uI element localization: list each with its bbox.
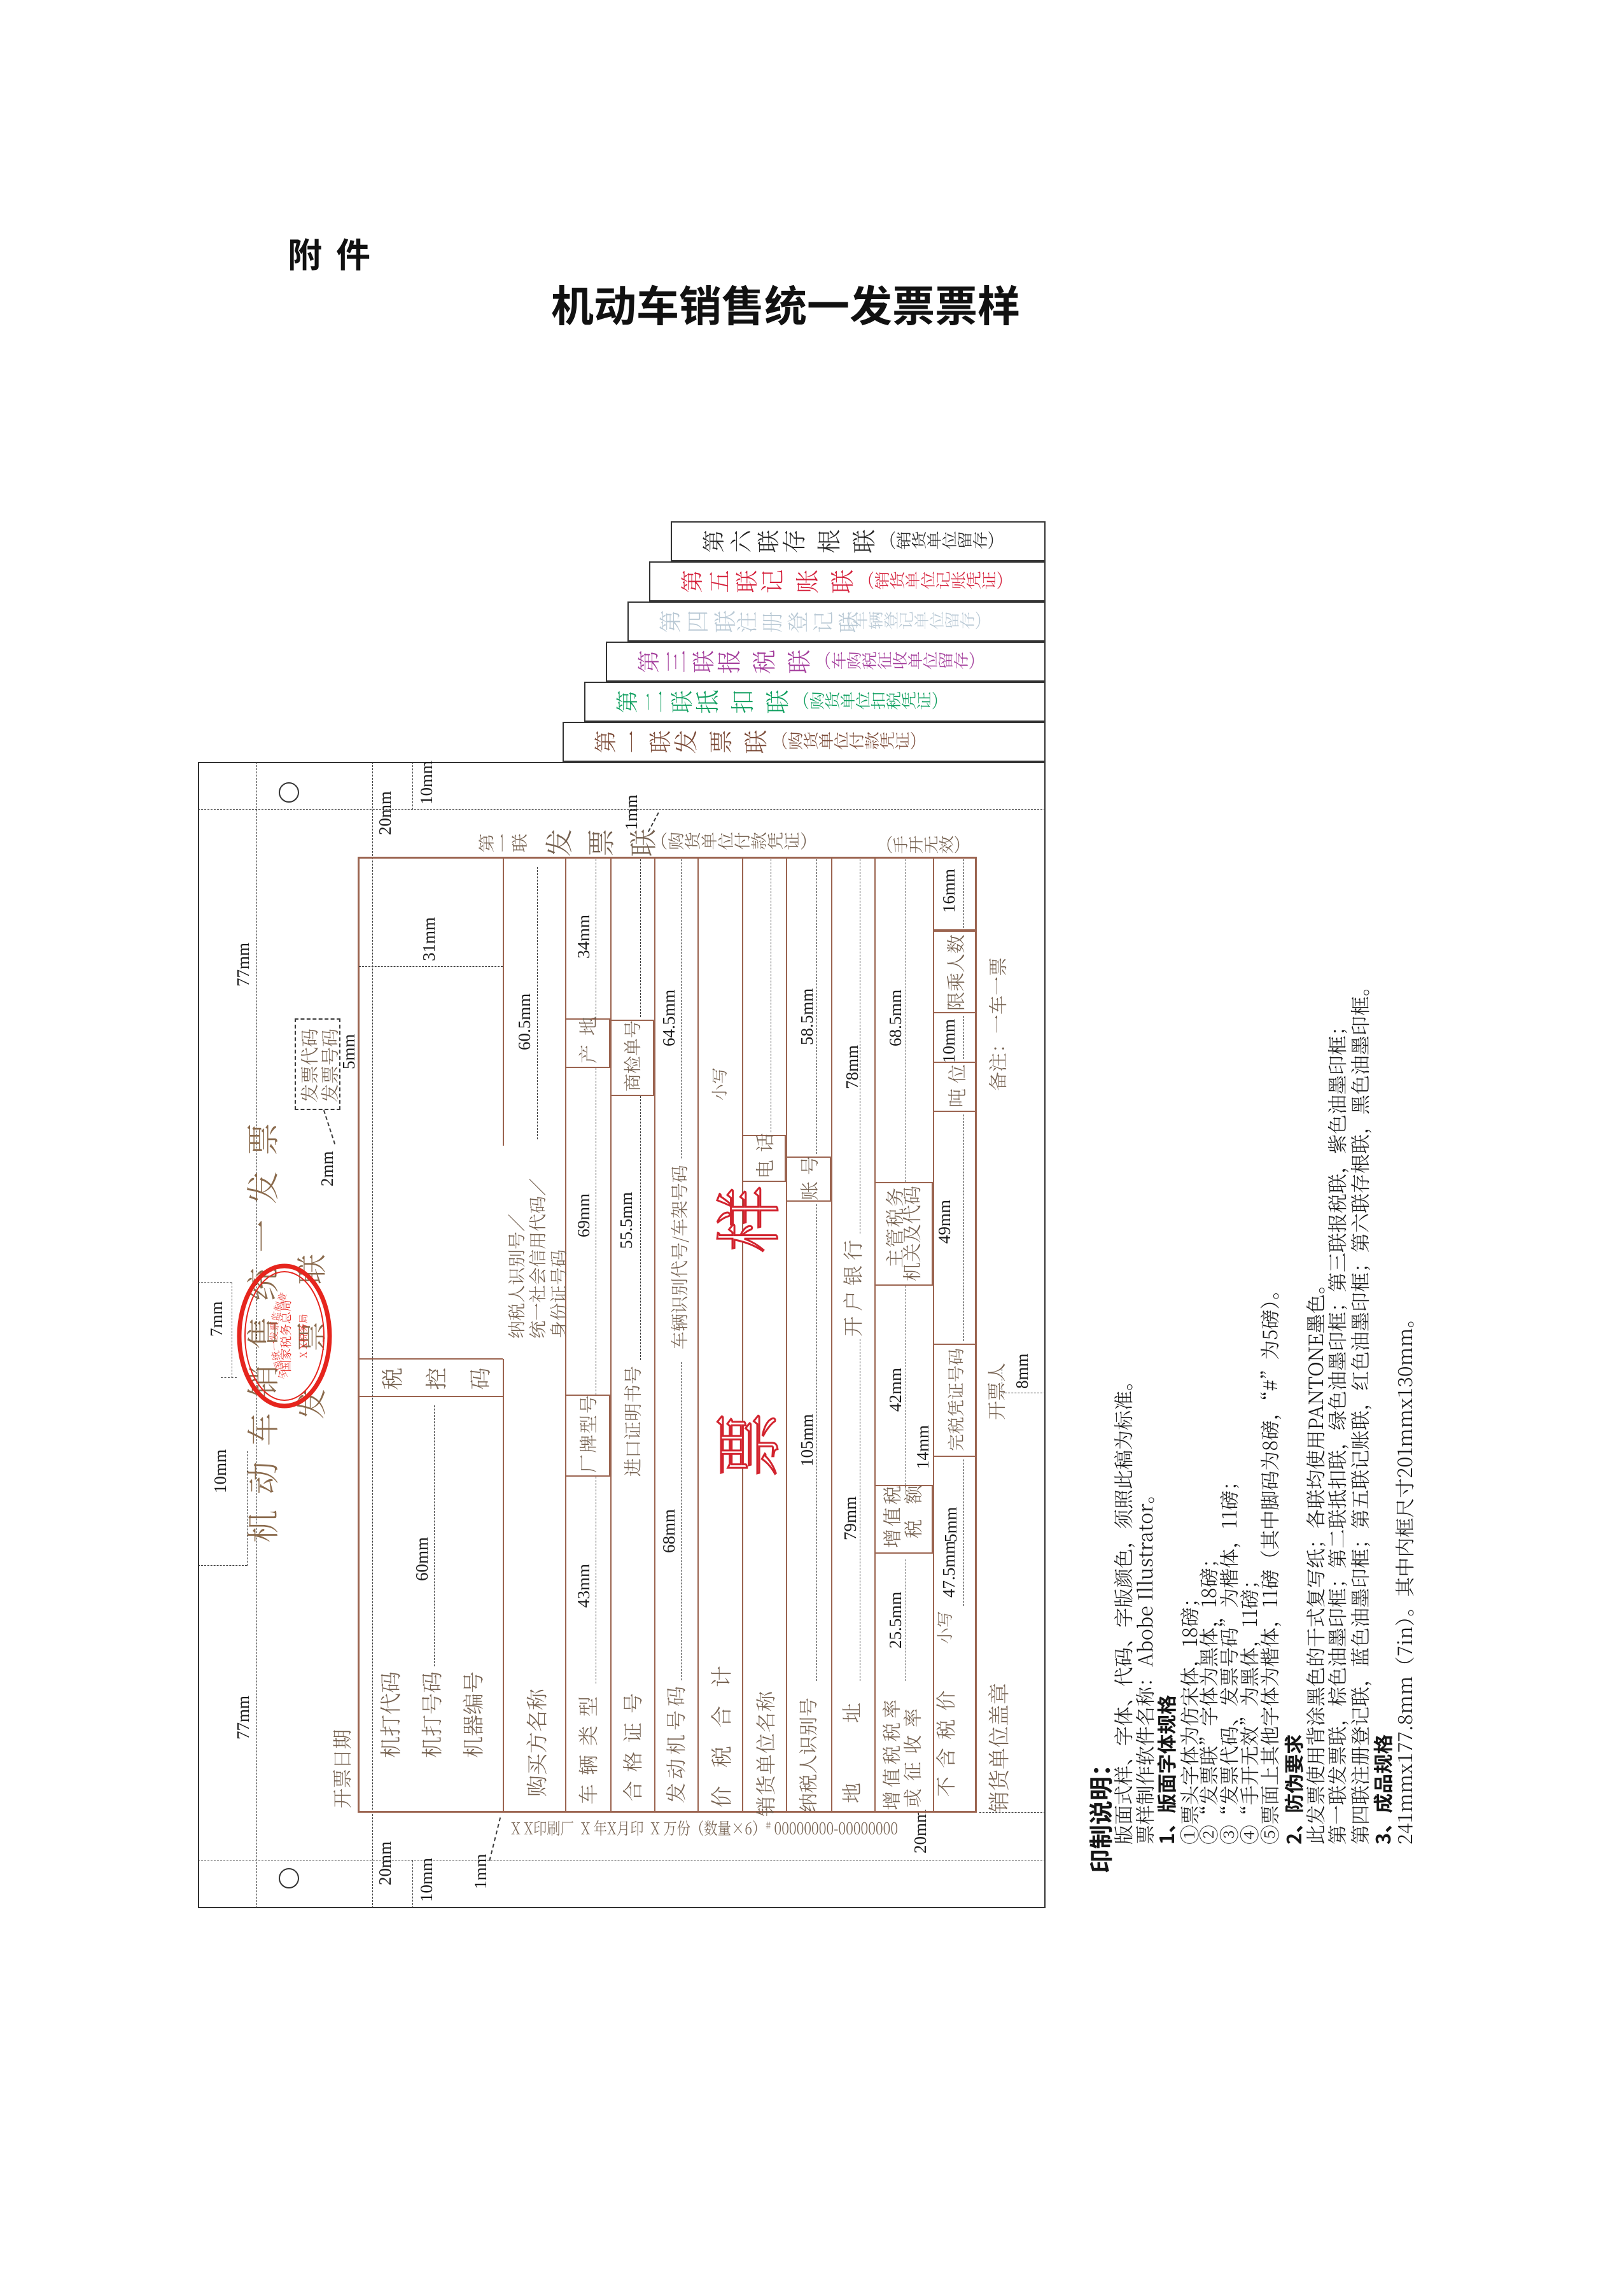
svg-text:国家税务总局: 国家税务总局 — [277, 1300, 294, 1372]
svg-text:X X税务局: X X税务局 — [297, 1314, 310, 1358]
